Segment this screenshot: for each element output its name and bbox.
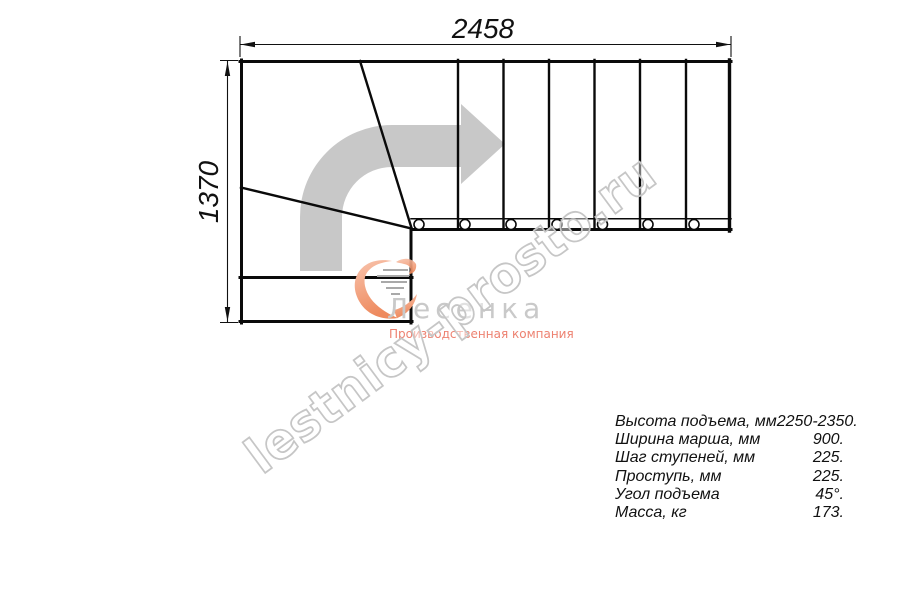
watermark: lestnicy-prosto.ru — [235, 144, 667, 485]
spec-label: Проступь, мм — [615, 468, 721, 486]
spec-value: 173. — [813, 504, 844, 522]
dimension-label-top: 2458 — [451, 13, 515, 44]
baluster-circle — [689, 220, 699, 230]
spec-label: Шаг ступеней, мм — [615, 449, 755, 467]
baluster-circle — [506, 220, 516, 230]
spec-label: Угол подъема — [615, 486, 720, 504]
spec-value: 900. — [813, 431, 844, 449]
spec-row: Угол подъема 45°. — [615, 486, 844, 504]
dimension-label-left: 1370 — [193, 160, 224, 223]
spec-label: Высота подъема, мм — [615, 413, 777, 431]
spec-row: Шаг ступеней, мм 225. — [615, 449, 844, 467]
baluster-circle — [460, 220, 470, 230]
spec-row: Масса, кг 173. — [615, 504, 844, 522]
spec-label: Ширина марша, мм — [615, 431, 760, 449]
spec-row: Проступь, мм 225. — [615, 468, 844, 486]
stair-plan-page: 2458 1370 Лесе — [0, 0, 900, 600]
baluster-circle — [643, 220, 653, 230]
spec-value: 2250-2350. — [777, 413, 858, 431]
spec-row: Высота подъема, мм 2250-2350. — [615, 413, 844, 431]
spec-row: Ширина марша, мм 900. — [615, 431, 844, 449]
direction-arrow-icon — [300, 104, 505, 271]
spec-table: Высота подъема, мм 2250-2350. Ширина мар… — [615, 413, 844, 522]
baluster-circle — [414, 220, 424, 230]
spec-value: 225. — [813, 468, 844, 486]
spec-value: 45°. — [815, 486, 844, 504]
spec-label: Масса, кг — [615, 504, 687, 522]
spec-value: 225. — [813, 449, 844, 467]
